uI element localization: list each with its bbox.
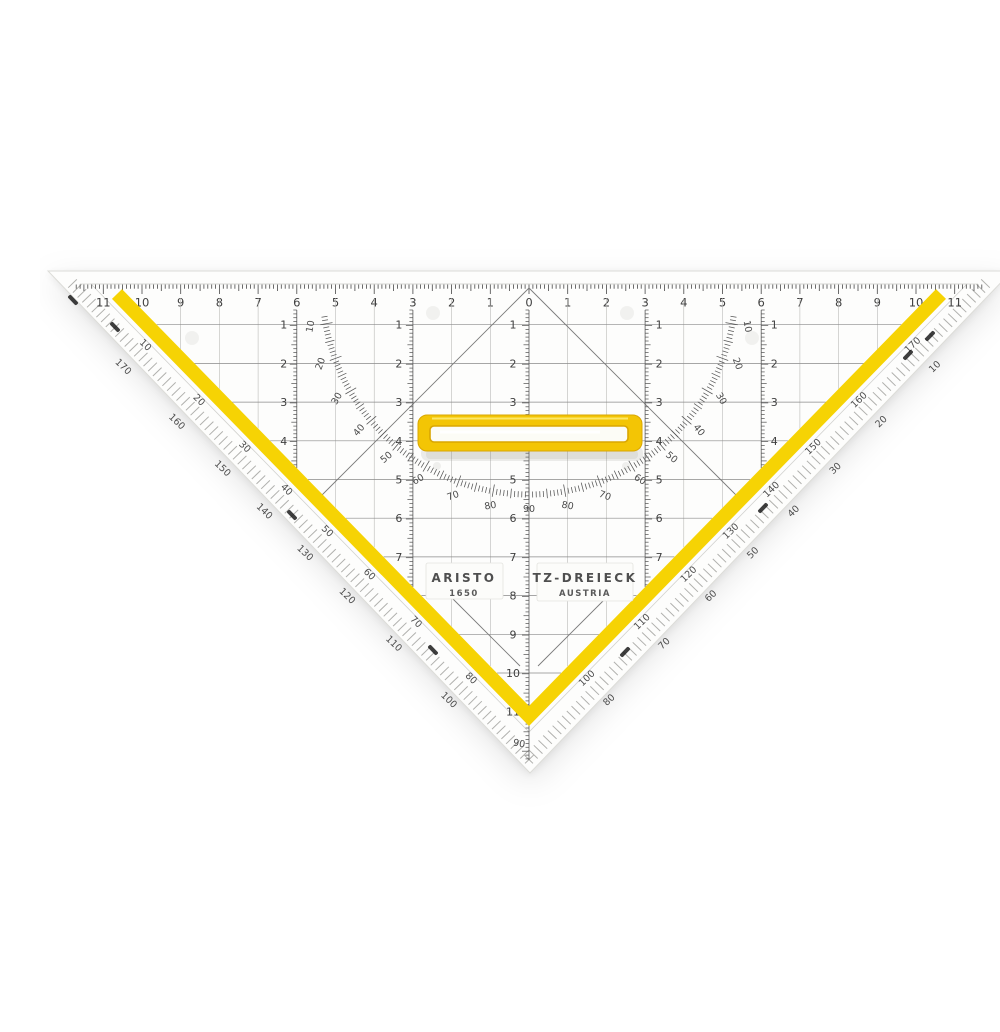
- svg-text:50: 50: [745, 545, 761, 561]
- svg-text:80: 80: [561, 500, 575, 513]
- svg-text:1: 1: [771, 319, 778, 332]
- svg-text:5: 5: [656, 474, 663, 487]
- svg-text:2: 2: [280, 357, 287, 370]
- svg-text:7: 7: [510, 551, 517, 564]
- svg-text:90: 90: [512, 738, 526, 751]
- triangle-body: [48, 271, 1000, 773]
- set-square: 1110987654321012345678910111234123456712…: [40, 16, 1000, 1016]
- svg-text:90: 90: [523, 504, 535, 515]
- svg-text:1: 1: [656, 319, 663, 332]
- svg-text:11: 11: [96, 296, 111, 310]
- origin-text: AUSTRIA: [559, 589, 611, 599]
- svg-text:3: 3: [409, 296, 416, 310]
- svg-text:6: 6: [395, 512, 402, 525]
- svg-text:3: 3: [395, 396, 402, 409]
- svg-text:10: 10: [927, 359, 943, 375]
- svg-text:10: 10: [304, 320, 317, 334]
- svg-text:3: 3: [510, 396, 517, 409]
- svg-text:3: 3: [641, 296, 648, 310]
- svg-text:1: 1: [395, 319, 402, 332]
- svg-text:80: 80: [484, 500, 498, 513]
- svg-text:3: 3: [656, 396, 663, 409]
- svg-text:9: 9: [510, 628, 517, 641]
- svg-text:6: 6: [656, 512, 663, 525]
- svg-text:2: 2: [771, 357, 778, 370]
- svg-text:10: 10: [506, 667, 520, 680]
- svg-text:30: 30: [828, 461, 844, 477]
- svg-text:7: 7: [656, 551, 663, 564]
- svg-text:40: 40: [786, 503, 802, 519]
- svg-text:11: 11: [947, 296, 962, 310]
- svg-text:170: 170: [113, 357, 134, 378]
- svg-text:150: 150: [212, 459, 233, 480]
- brand-text: ARISTO: [431, 571, 496, 585]
- svg-text:6: 6: [510, 512, 517, 525]
- svg-text:8: 8: [510, 590, 517, 603]
- set-square-drawing: 1110987654321012345678910111234123456712…: [48, 271, 1000, 773]
- svg-text:5: 5: [510, 474, 517, 487]
- svg-text:6: 6: [758, 296, 765, 310]
- svg-text:1: 1: [280, 319, 287, 332]
- svg-text:0: 0: [525, 296, 532, 310]
- svg-text:3: 3: [280, 396, 287, 409]
- svg-text:20: 20: [873, 414, 889, 430]
- svg-text:4: 4: [771, 435, 778, 448]
- type-text: TZ-DREIECK: [533, 571, 638, 585]
- svg-text:2: 2: [510, 357, 517, 370]
- svg-text:2: 2: [395, 357, 402, 370]
- set-square-photo: 1110987654321012345678910111234123456712…: [40, 16, 1000, 1016]
- model-text: 1650: [449, 589, 479, 599]
- svg-text:3: 3: [771, 396, 778, 409]
- svg-text:2: 2: [656, 357, 663, 370]
- svg-text:140: 140: [254, 501, 275, 522]
- svg-text:6: 6: [293, 296, 300, 310]
- svg-text:1: 1: [510, 319, 517, 332]
- svg-text:7: 7: [395, 551, 402, 564]
- svg-text:5: 5: [395, 474, 402, 487]
- svg-text:160: 160: [166, 412, 187, 433]
- svg-text:4: 4: [280, 435, 287, 448]
